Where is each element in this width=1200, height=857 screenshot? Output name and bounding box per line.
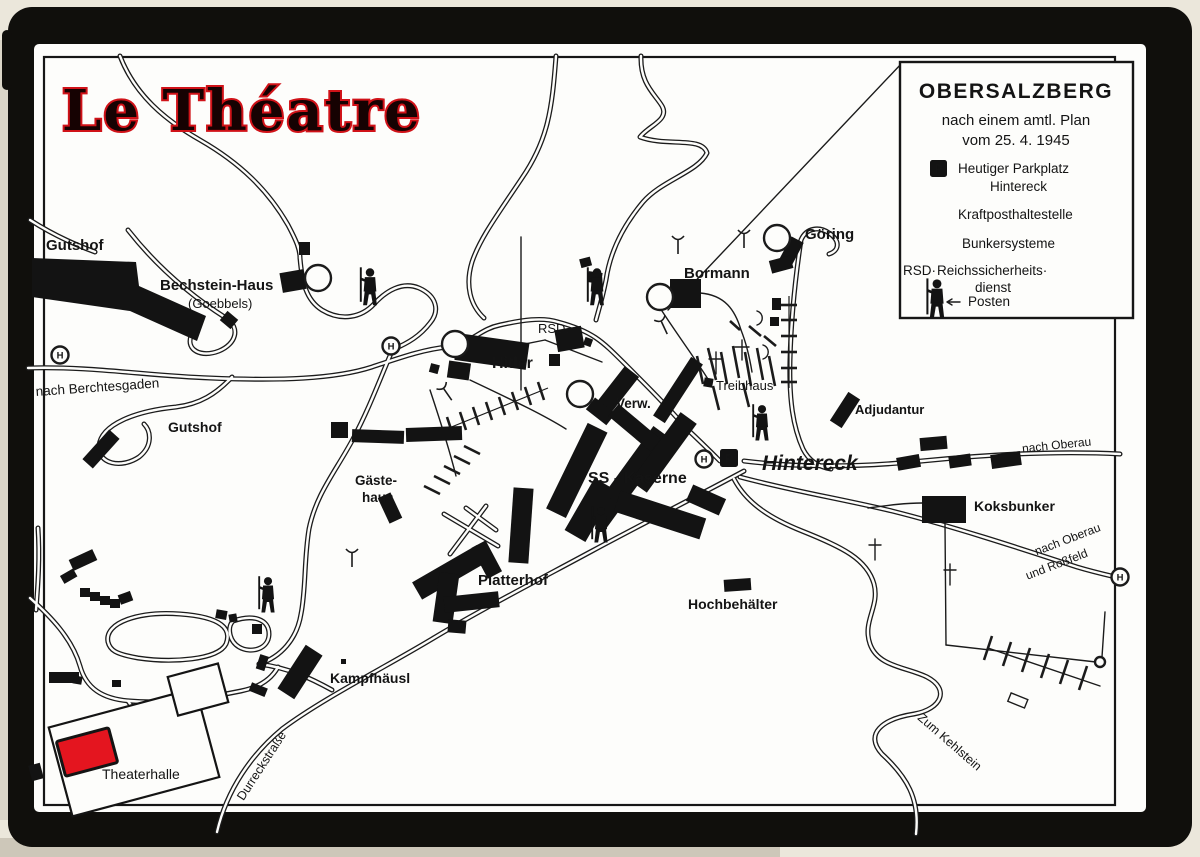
- label-rsd: RSD.: [538, 321, 569, 336]
- label-gutshof-nw: Gutshof: [46, 237, 104, 254]
- legend-heading: OBERSALZBERG: [919, 80, 1113, 103]
- postcard-scan: H: [0, 0, 1200, 857]
- parking-marker: P: [720, 449, 738, 467]
- label-treibhaus: Treibhaus: [716, 378, 774, 393]
- building-bormann: [670, 279, 701, 308]
- legend-subtitle-1: nach einem amtl. Plan: [942, 112, 1090, 129]
- building-hochbehaelter: [724, 578, 752, 592]
- building-gutshof-w: [406, 426, 462, 442]
- legend-rsd-prefix: RSD·: [903, 263, 936, 278]
- parking-letter: P: [725, 451, 734, 466]
- label-verw: Verw.: [616, 396, 651, 411]
- label-gutshof-w: Gutshof: [168, 419, 222, 435]
- legend-item-busstop: Kraftposthaltestelle: [958, 207, 1073, 222]
- legend-item-rsd: Reichssicherheits·: [937, 263, 1047, 278]
- label-adjudantur: Adjudantur: [855, 402, 924, 417]
- label-goering: Göring: [805, 226, 854, 243]
- label-hitler: Hitler: [492, 355, 533, 372]
- label-platterhof: Platterhof: [478, 572, 549, 589]
- legend-item-bunker: Bunkersysteme: [962, 236, 1055, 251]
- obersalzberg-map: H: [0, 0, 1200, 857]
- building-koksbunker: [922, 496, 966, 523]
- label-ss-kaserne: SS - Kaserne: [588, 470, 687, 487]
- label-gaestehaus-1: Gäste-: [355, 473, 397, 488]
- label-kampfhaeusl: Kampfhäusl: [330, 670, 410, 686]
- legend-item-parking: Heutiger Parkplatz: [958, 161, 1069, 176]
- building-bechstein-haus: [279, 269, 306, 293]
- label-bormann: Bormann: [684, 265, 750, 282]
- label-hochbehaelter: Hochbehälter: [688, 596, 778, 612]
- label-hintereck: Hintereck: [762, 452, 859, 475]
- label-theaterhalle: Theaterhalle: [102, 766, 180, 782]
- legend-item-posten: Posten: [968, 294, 1010, 309]
- legend: OBERSALZBERG nach einem amtl. Plan vom 2…: [900, 62, 1133, 318]
- label-goebbels: (Goebbels): [188, 296, 252, 311]
- frame-rough-edge: [2, 30, 12, 90]
- label-bechstein-haus: Bechstein-Haus: [160, 277, 273, 294]
- legend-item-parking-2: Hintereck: [990, 179, 1047, 194]
- label-gaestehaus-2: haus: [362, 490, 394, 505]
- legend-item-rsd-2: dienst: [975, 280, 1011, 295]
- page-title: Le Théatre: [62, 78, 422, 144]
- legend-parking-letter: P: [934, 162, 942, 176]
- label-koksbunker: Koksbunker: [974, 498, 1055, 514]
- legend-subtitle-2: vom 25. 4. 1945: [962, 132, 1070, 149]
